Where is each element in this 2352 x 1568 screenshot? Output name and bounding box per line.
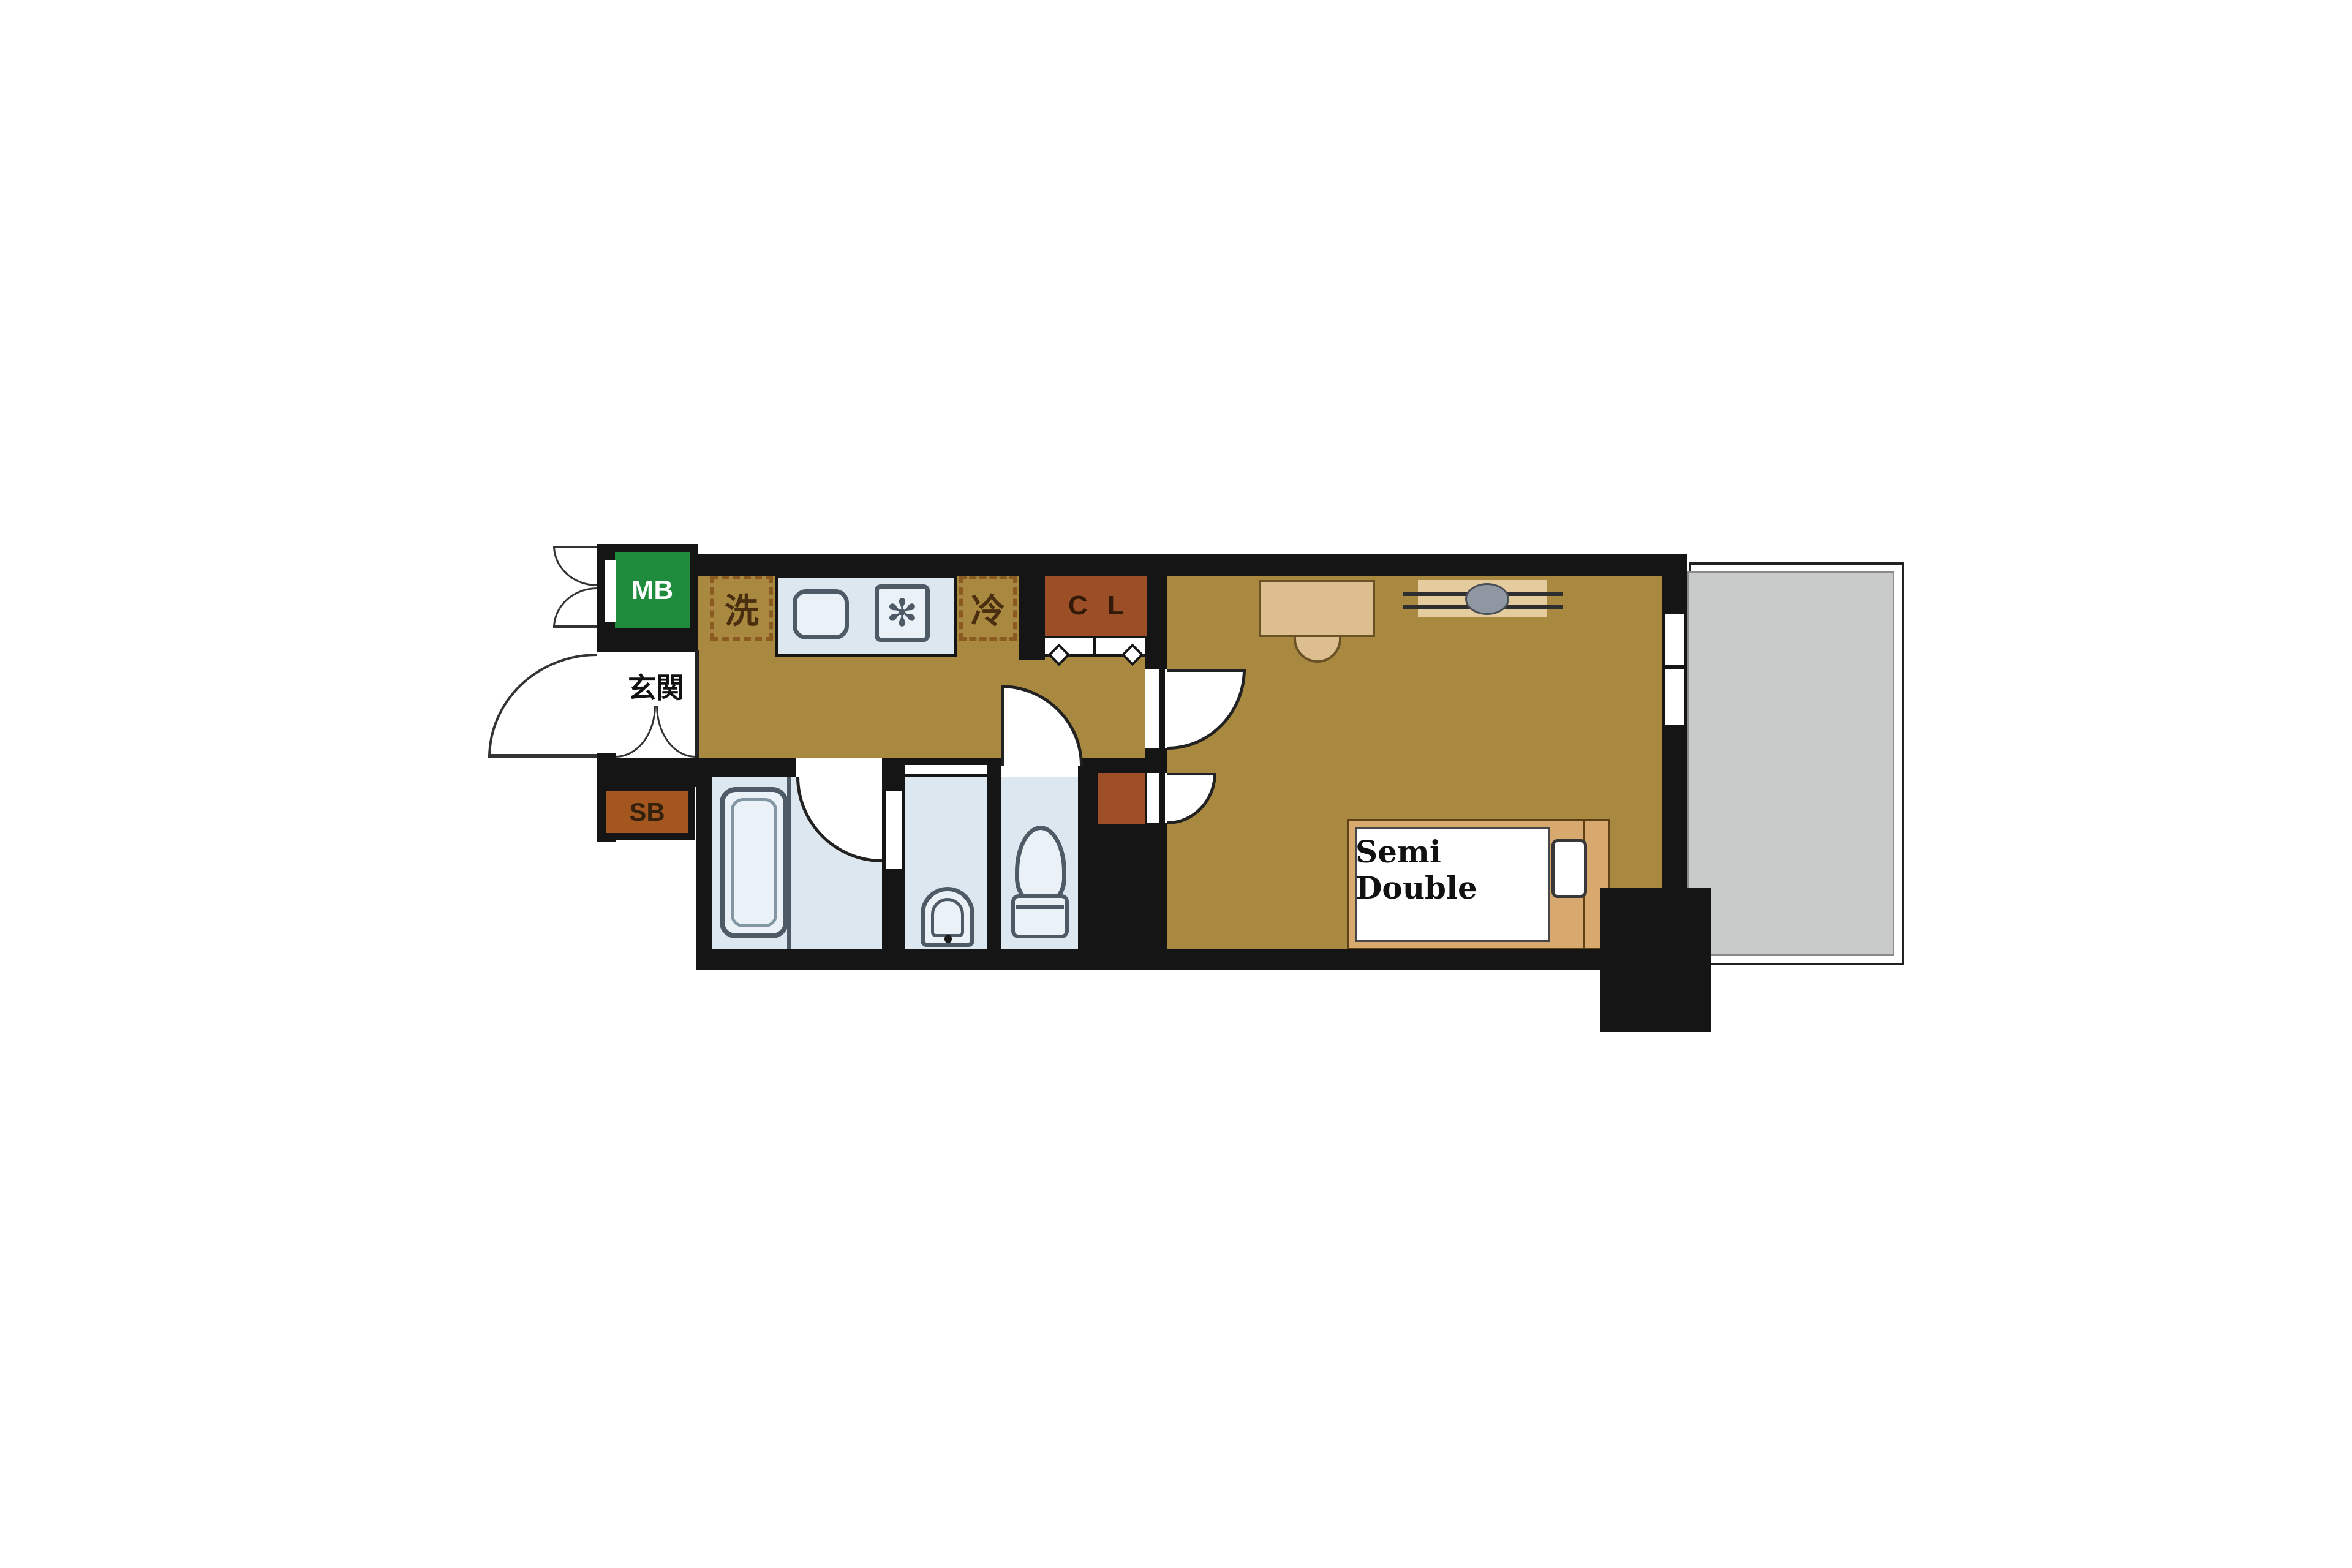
storage-door-leaf: [1159, 773, 1165, 826]
washing-machine-space: 洗: [710, 576, 773, 641]
washroom-door-opening: [905, 765, 987, 774]
kitchen-sink: [793, 589, 849, 639]
stove-burner: ✻: [875, 584, 930, 642]
desk: [1259, 580, 1375, 637]
bed-label: Semi Double: [1355, 827, 1550, 913]
bath-washroom-door-opening: [886, 791, 902, 869]
wall-genkan-sb-divider: [597, 758, 697, 787]
closet-label: C L: [1045, 576, 1147, 636]
refrigerator-space: 冷: [959, 576, 1017, 641]
entrance-step-curve-right: [656, 706, 695, 758]
bathroom-divider: [787, 777, 791, 949]
entrance-label: 玄関: [616, 665, 696, 707]
entrance-step-curve-left: [616, 706, 656, 758]
wall-bath-west: [696, 777, 712, 970]
closet-folding-door-tick: [1093, 636, 1096, 657]
balcony-window-pane-lower: [1665, 669, 1684, 725]
stove-burner-icon: ✻: [886, 594, 918, 632]
wall-stub-fridge-closet: [1019, 554, 1045, 660]
toilet-seat-line: [1016, 905, 1064, 909]
shoe-box-label: SB: [599, 784, 695, 840]
balcony-deck: [1687, 571, 1894, 956]
bathtub-inner: [731, 798, 777, 927]
bed-pillow: [1551, 839, 1587, 898]
wall-hall-bottom-b: [882, 758, 905, 777]
washing-machine-label: 洗: [725, 584, 759, 633]
refrigerator-label: 冷: [971, 584, 1005, 633]
meter-box-door-arc-top: [553, 546, 597, 586]
entrance-step-line: [695, 650, 699, 758]
wall-bedroom-west-lower: [1145, 823, 1167, 970]
bedroom-door-leaf: [1159, 669, 1165, 755]
balcony-window-pane-upper: [1665, 614, 1684, 665]
entrance-door-arc: [488, 654, 597, 758]
wall-bedroom-west-upper: [1145, 576, 1167, 669]
floorplan-canvas: MB 玄関 SB 洗 ✻ 冷 C L: [0, 0, 2352, 1568]
wall-hall-bottom-c: [987, 758, 1001, 777]
wall-bottom: [696, 949, 1710, 970]
structural-pillar: [1600, 888, 1711, 1032]
washbasin-inner: [931, 898, 964, 937]
meter-box-door-arc-bottom: [553, 587, 597, 628]
toilet-tank: [1011, 894, 1069, 938]
wall-washroom-toilet: [987, 777, 1001, 949]
washbasin-drain-dot: [944, 935, 952, 943]
wall-top: [695, 554, 1687, 576]
pipe-space: [1098, 773, 1145, 824]
meter-box-label: MB: [606, 544, 698, 637]
ac-unit-oval: [1465, 583, 1509, 615]
wall-hall-bottom-a: [696, 758, 796, 777]
